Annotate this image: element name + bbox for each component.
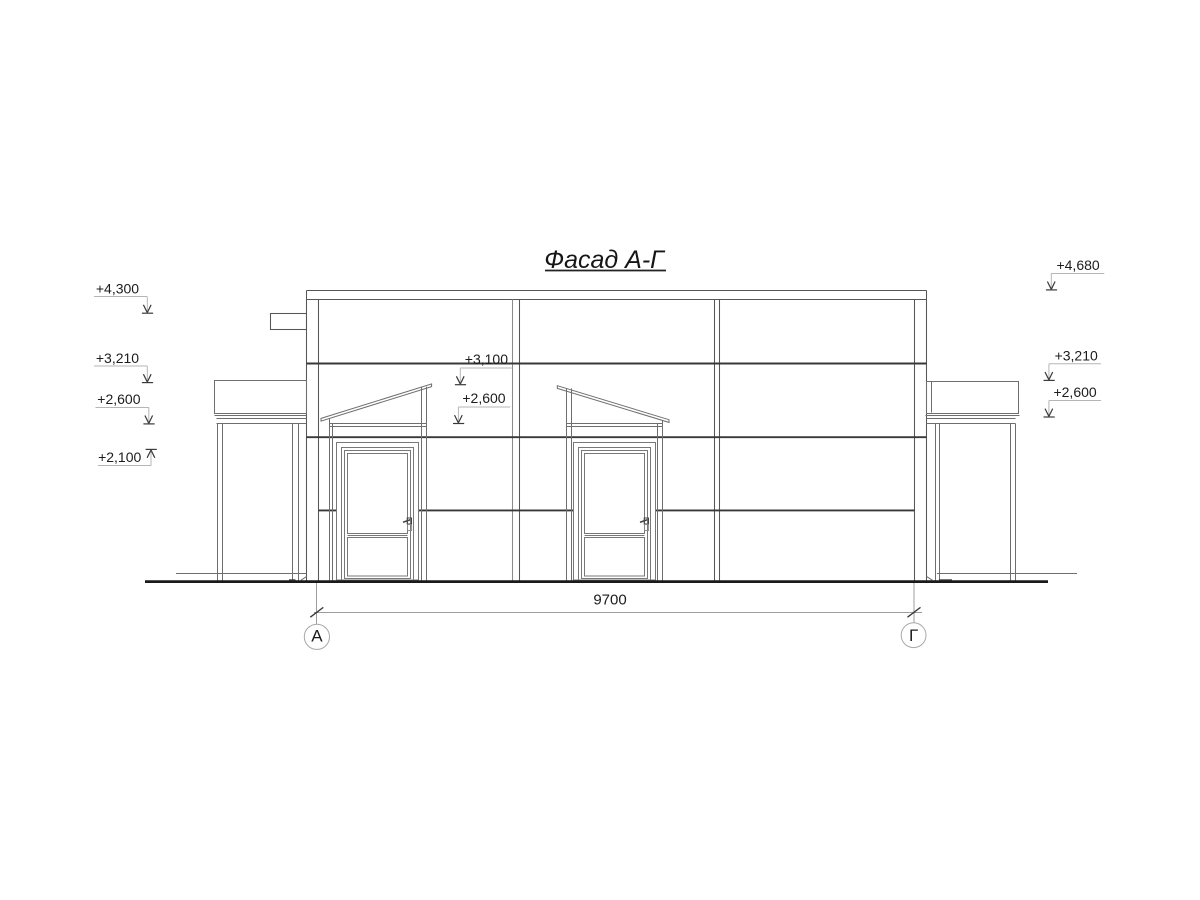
svg-text:+4,300: +4,300: [96, 280, 139, 296]
svg-text:+4,680: +4,680: [1056, 257, 1099, 273]
svg-text:+3,100: +3,100: [465, 351, 508, 367]
svg-text:Г: Г: [909, 626, 918, 645]
svg-text:+2,100: +2,100: [98, 449, 141, 465]
svg-text:+2,600: +2,600: [97, 391, 140, 407]
svg-text:9700: 9700: [593, 592, 626, 609]
svg-text:+3,210: +3,210: [96, 350, 139, 366]
svg-text:+2,600: +2,600: [462, 390, 505, 406]
svg-text:А: А: [311, 627, 323, 646]
svg-text:+3,210: +3,210: [1055, 347, 1098, 363]
svg-text:+2,600: +2,600: [1053, 384, 1096, 400]
